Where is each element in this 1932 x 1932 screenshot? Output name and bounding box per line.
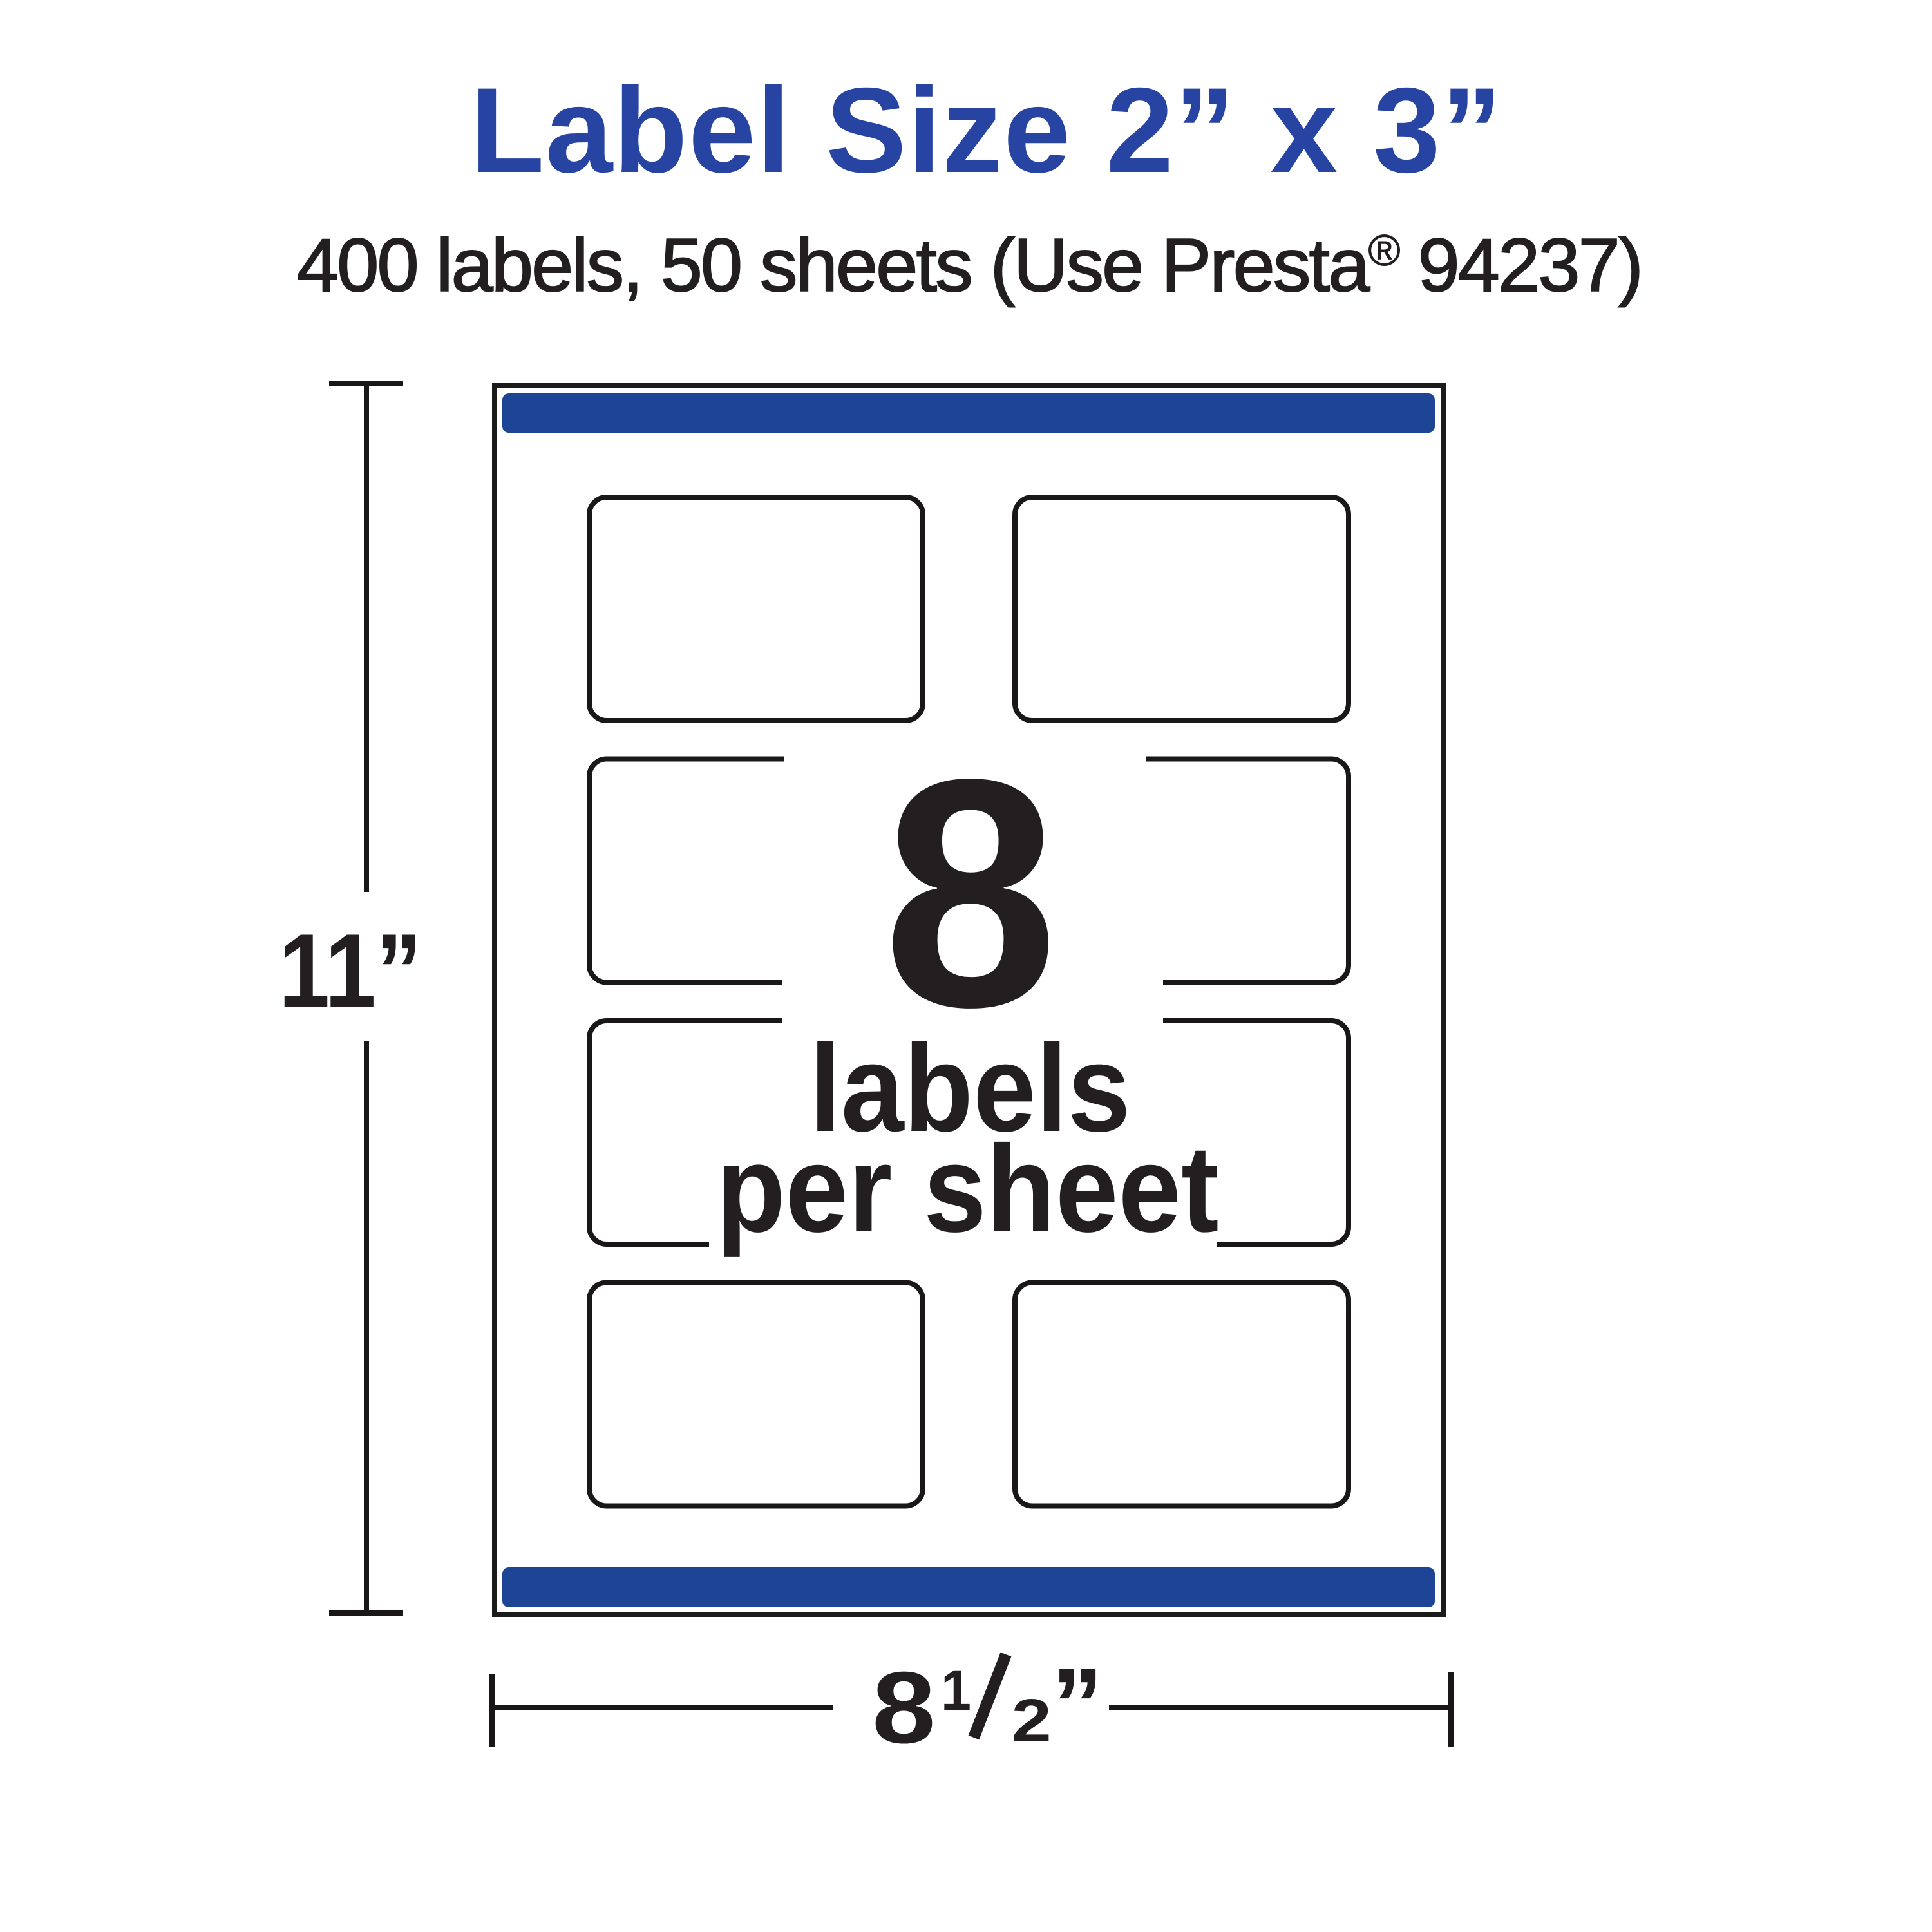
- svg-text:1: 1: [941, 1658, 971, 1722]
- svg-text:2: 2: [1012, 1687, 1052, 1755]
- svg-text:11”: 11”: [279, 913, 422, 1029]
- svg-text:8: 8: [872, 1651, 936, 1765]
- svg-text:Label Size 2” x 3”: Label Size 2” x 3”: [470, 62, 1502, 198]
- svg-text:”: ”: [1052, 1647, 1103, 1762]
- svg-text:per sheet: per sheet: [716, 1120, 1218, 1258]
- svg-text:400 labels, 50 sheets (Use Pre: 400 labels, 50 sheets (Use Presta® 94237…: [297, 223, 1642, 307]
